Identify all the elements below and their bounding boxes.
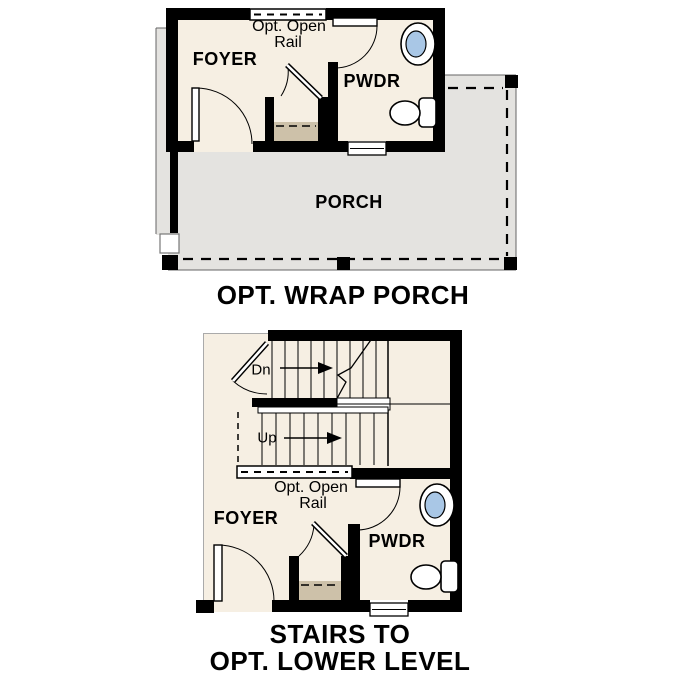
top-foyer-label: FOYER bbox=[193, 50, 258, 68]
bottom-rail-label-line2: Rail bbox=[299, 496, 327, 512]
floorplan-page: Opt. Open Rail FOYER PWDR PORCH OPT. WRA… bbox=[0, 0, 687, 687]
bottom-plan-caption-line2: OPT. LOWER LEVEL bbox=[210, 648, 471, 674]
top-plan-caption: OPT. WRAP PORCH bbox=[217, 282, 470, 308]
bottom-open-rail-symbol bbox=[237, 466, 352, 478]
floorplan-drawing bbox=[0, 0, 687, 687]
top-plan bbox=[156, 8, 518, 270]
bottom-closet-floor bbox=[299, 581, 341, 601]
bottom-foyer-label: FOYER bbox=[214, 509, 279, 527]
top-sink-icon bbox=[401, 23, 435, 65]
top-rail-label-line2: Rail bbox=[274, 35, 302, 51]
bottom-rail-label-line1: Opt. Open bbox=[274, 480, 348, 496]
porch-label: PORCH bbox=[315, 193, 383, 211]
bottom-plan-caption-line1: STAIRS TO bbox=[270, 621, 411, 647]
top-window bbox=[348, 142, 386, 155]
bottom-window bbox=[370, 603, 408, 616]
top-rail-label-line1: Opt. Open bbox=[252, 19, 326, 35]
top-toilet-icon bbox=[390, 98, 436, 127]
stairs-down-label: Dn bbox=[251, 363, 270, 378]
bottom-sink-icon bbox=[420, 484, 454, 526]
top-closet-floor bbox=[274, 122, 318, 141]
bottom-powder-label: PWDR bbox=[369, 532, 426, 550]
bottom-plan bbox=[196, 330, 462, 616]
stairs-up-label: Up bbox=[257, 431, 276, 446]
top-powder-label: PWDR bbox=[344, 72, 401, 90]
